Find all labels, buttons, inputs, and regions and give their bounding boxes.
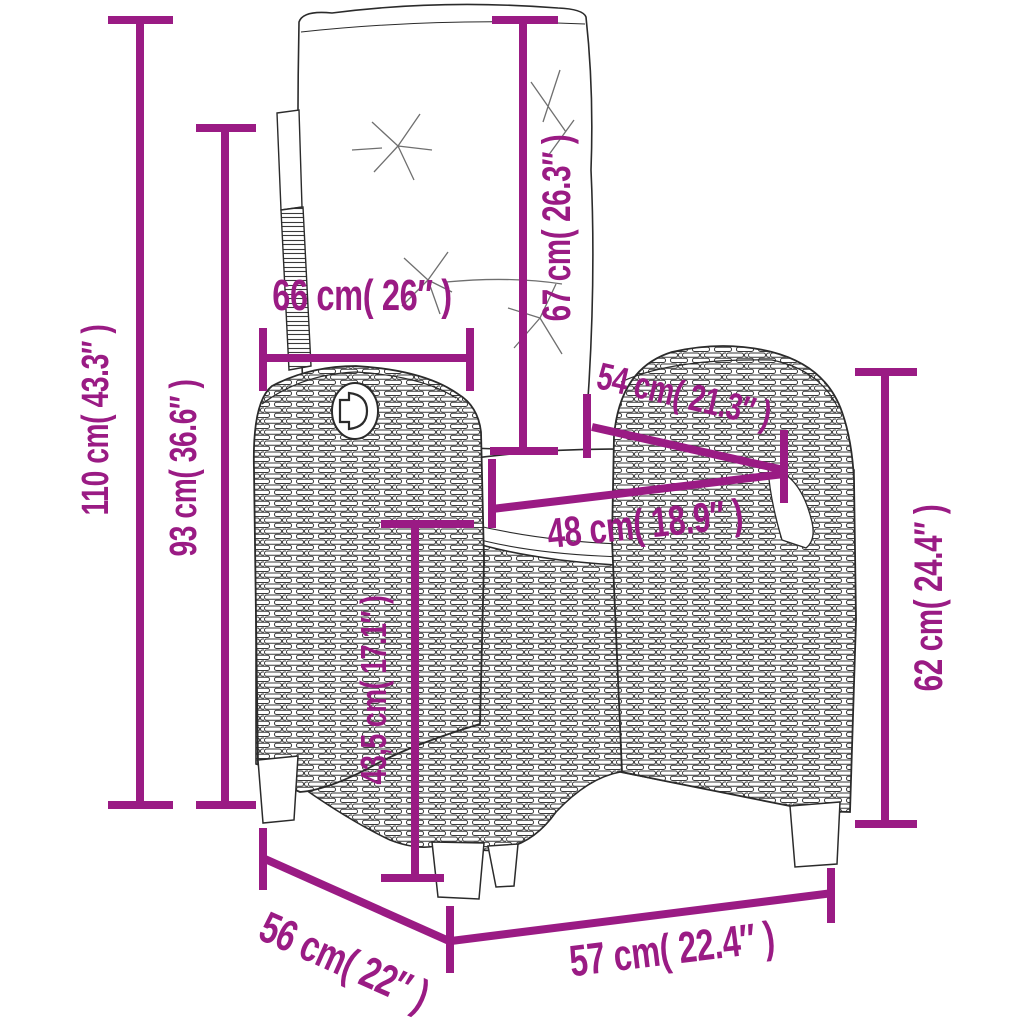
measure-armrest-height-label: 62 cm( 24.4″ ): [909, 505, 949, 692]
dimension-diagram: 110 cm( 43.3″ ) 93 cm( 36.6″ ) 66 cm( 26…: [0, 0, 1024, 1024]
measure-total-height-label: 110 cm( 43.3″ ): [77, 325, 115, 516]
measure-backrest-width-label: 66 cm( 26″ ): [272, 274, 451, 318]
measure-back-top-height-label: 93 cm( 36.6″ ): [165, 379, 203, 556]
recline-strap-top: [277, 110, 302, 210]
measure-backrest-height-label: 67 cm( 26.3″ ): [537, 135, 577, 322]
measure-seat-height-label: 43,5 cm( 17.1″ ): [356, 596, 392, 785]
recline-knob: [332, 383, 378, 439]
diagram-canvas: [0, 0, 1024, 1024]
measure-back-top-height-line: [196, 128, 256, 805]
